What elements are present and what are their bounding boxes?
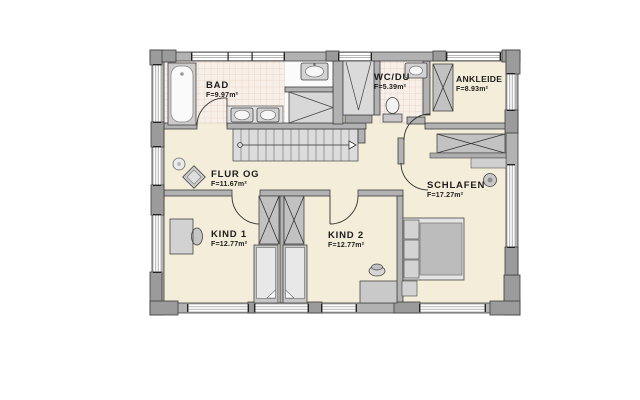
wall-ankleide-bottom xyxy=(425,123,506,129)
room-area-kind1: F=12.77m² xyxy=(211,241,248,248)
tub-drain-icon xyxy=(180,72,184,76)
window-schlafen-bottom xyxy=(419,304,486,312)
room-label-ankleide: ANKLEIDE xyxy=(456,74,502,84)
kind2-wardrobe xyxy=(284,196,304,244)
window-ankleide-right xyxy=(507,73,515,111)
room-area-kind2: F=12.77m² xyxy=(328,242,365,249)
sink-basin-icon xyxy=(235,110,250,120)
window-kind2-bottom xyxy=(321,304,357,312)
faucet-icon xyxy=(313,63,315,65)
bad-washbasins xyxy=(227,106,283,123)
room-area-schlafen: F=17.27m² xyxy=(427,192,464,199)
window-shower-top xyxy=(338,53,372,61)
wall-flur-kind2 xyxy=(358,190,403,196)
wall-flur-kind1 xyxy=(164,190,232,196)
room-label-flur: FLUR OG xyxy=(211,169,259,180)
window-beds-bottom xyxy=(254,304,309,312)
room-area-wc: F=5.39m² xyxy=(374,84,407,91)
wardrobe-rail xyxy=(430,153,506,158)
floorplan-page: BAD F=9.97m² WC/DU F=5.39m² ANKLEIDE F=8… xyxy=(0,0,640,400)
ankleide-wardrobe xyxy=(433,64,453,111)
kind2-bed xyxy=(283,245,307,303)
wc-shower xyxy=(343,61,374,115)
window-kind1-left xyxy=(153,214,161,273)
schlafen-stool xyxy=(484,174,497,187)
schlafen-shelf xyxy=(471,158,506,168)
sink-basin-icon xyxy=(261,110,276,120)
room-label-kind2: KIND 2 xyxy=(328,230,364,241)
window-kind1-bottom xyxy=(187,304,249,312)
wall-shower-top-bar xyxy=(285,87,333,92)
stair-start-circle xyxy=(238,143,243,148)
room-label-bad: BAD xyxy=(206,80,229,91)
floorplan-canvas: BAD F=9.97m² WC/DU F=5.39m² ANKLEIDE F=8… xyxy=(0,0,640,400)
room-label-wc: WC/DU xyxy=(374,72,410,83)
wall-stairwell-top xyxy=(227,123,366,129)
wall-flur-kind-mid xyxy=(260,190,330,196)
room-label-kind1: KIND 1 xyxy=(211,229,247,240)
kind1-wardrobe xyxy=(259,196,279,244)
flur-plant xyxy=(173,158,185,170)
window-schlafen-right xyxy=(507,164,515,248)
window-ankleide-top xyxy=(446,53,501,61)
bed-blanket xyxy=(420,223,462,275)
wall-flur-schlafen-stub xyxy=(398,138,404,164)
bad-shower xyxy=(289,92,333,123)
window-bad-top xyxy=(191,53,285,61)
shower-entry-bar xyxy=(345,115,372,123)
window-bad-left xyxy=(153,64,161,123)
room-area-bad: F=9.97m² xyxy=(206,92,239,99)
room-label-schlafen: SCHLAFEN xyxy=(427,180,485,191)
bad-wall-sink xyxy=(301,63,328,80)
room-area-ankleide: F=8.93m² xyxy=(456,86,489,93)
kind1-bed xyxy=(254,245,278,303)
window-flur-left xyxy=(153,146,161,186)
wall-bad-shower xyxy=(333,61,343,124)
bathtub xyxy=(168,63,196,125)
bed-foot-box xyxy=(402,281,417,296)
staircase xyxy=(233,129,358,161)
wall-stair-stub xyxy=(358,129,365,143)
room-area-flur: F=11.67m² xyxy=(211,181,247,188)
